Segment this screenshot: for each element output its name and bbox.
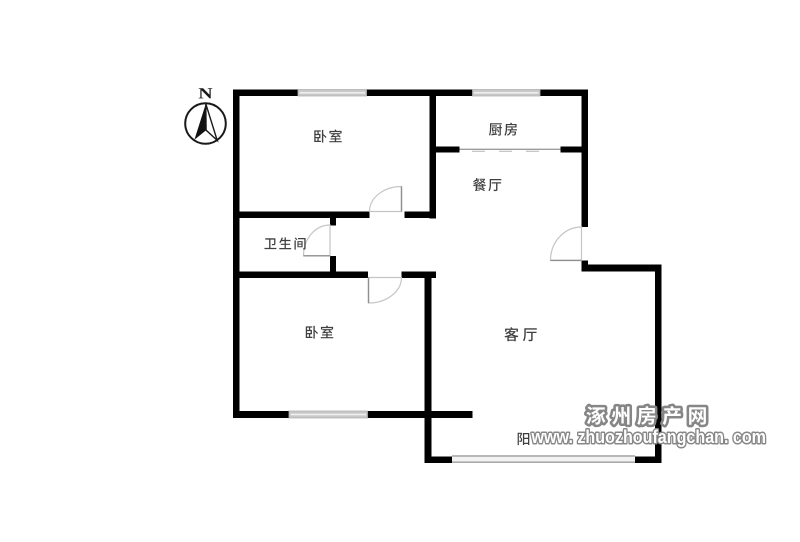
svg-text:www. zhuozhoufangchan. com: www. zhuozhoufangchan. com xyxy=(531,426,766,447)
